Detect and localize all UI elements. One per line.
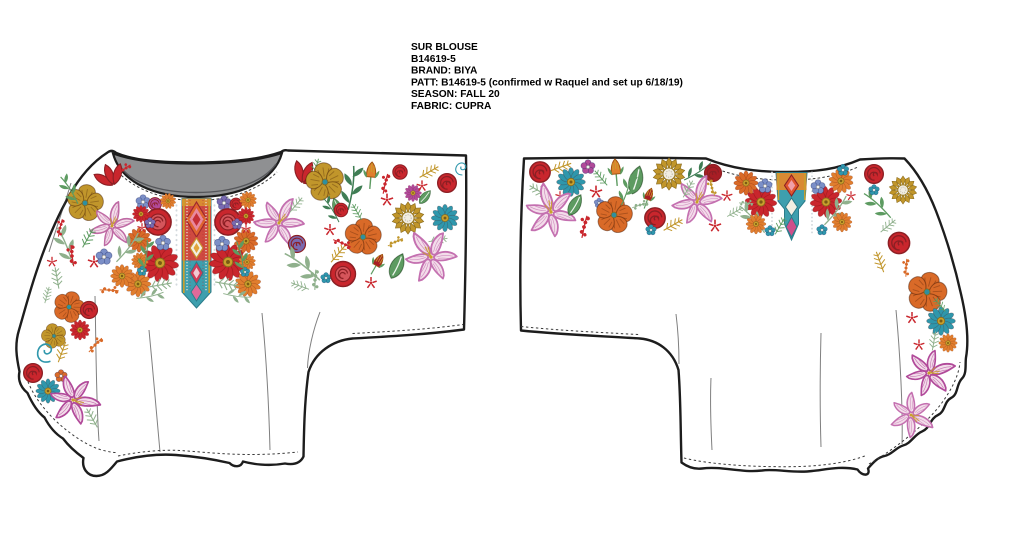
svg-text:B14619-5: B14619-5 (411, 54, 456, 65)
svg-text:SEASON: FALL 20: SEASON: FALL 20 (411, 89, 500, 100)
svg-text:BRAND: BIYA: BRAND: BIYA (411, 66, 478, 77)
svg-text:SUR BLOUSE: SUR BLOUSE (411, 42, 478, 53)
svg-text:FABRIC: CUPRA: FABRIC: CUPRA (411, 101, 492, 112)
svg-text:PATT: B14619-5 (confirmed w Ra: PATT: B14619-5 (confirmed w Raquel and s… (411, 77, 683, 88)
